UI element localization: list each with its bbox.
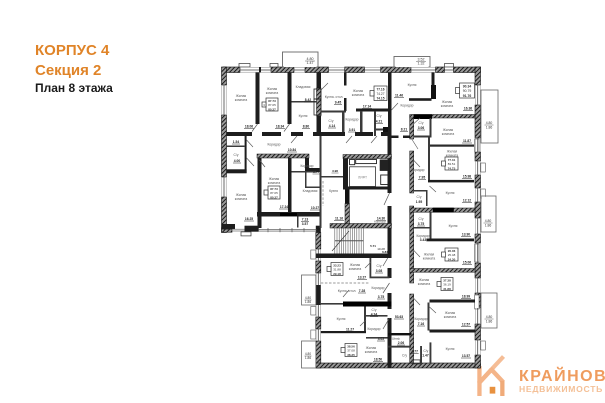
svg-text:13.27: 13.27 bbox=[358, 276, 366, 280]
svg-text:комната: комната bbox=[365, 350, 378, 354]
svg-text:13.90: 13.90 bbox=[462, 233, 470, 237]
svg-text:11.87: 11.87 bbox=[463, 139, 471, 143]
svg-text:С/у: С/у bbox=[234, 153, 239, 157]
svg-text:Кухня: Кухня bbox=[329, 189, 338, 193]
svg-text:4.00: 4.00 bbox=[234, 159, 241, 163]
svg-text:ЛИФТ: ЛИФТ bbox=[358, 176, 367, 180]
svg-text:Коридор: Коридор bbox=[371, 286, 384, 290]
svg-text:Кухня- стол.: Кухня- стол. bbox=[325, 95, 344, 99]
svg-text:комната: комната bbox=[444, 315, 457, 319]
svg-text:3.98: 3.98 bbox=[332, 169, 338, 173]
svg-text:комната: комната bbox=[442, 132, 455, 136]
svg-text:Кухня: Кухня bbox=[446, 347, 455, 351]
svg-text:90.34: 90.34 bbox=[463, 85, 472, 89]
svg-text:С/у: С/у bbox=[417, 195, 422, 199]
svg-text:Коридор: Коридор bbox=[414, 317, 427, 321]
svg-text:8.42: 8.42 bbox=[305, 98, 312, 102]
svg-text:4.02: 4.02 bbox=[378, 337, 385, 341]
svg-text:Коридор: Коридор bbox=[300, 164, 313, 168]
svg-text:31.88: 31.88 bbox=[443, 287, 451, 291]
svg-text:С/у: С/у bbox=[419, 121, 424, 125]
svg-text:3.44: 3.44 bbox=[313, 170, 319, 174]
svg-text:С/у: С/у bbox=[423, 349, 428, 353]
svg-text:4.80: 4.80 bbox=[485, 219, 492, 223]
svg-text:8.21: 8.21 bbox=[401, 128, 408, 132]
svg-text:77.16: 77.16 bbox=[377, 88, 385, 92]
svg-text:74.15: 74.15 bbox=[377, 97, 385, 101]
svg-text:4.21: 4.21 bbox=[376, 120, 383, 124]
svg-text:38.35: 38.35 bbox=[347, 353, 355, 357]
svg-text:13.57: 13.57 bbox=[462, 354, 470, 358]
svg-text:80.37: 80.37 bbox=[268, 107, 276, 111]
svg-text:90.79: 90.79 bbox=[463, 89, 472, 93]
svg-text:11.46: 11.46 bbox=[395, 94, 403, 98]
svg-text:18.99: 18.99 bbox=[462, 295, 470, 299]
svg-text:комната: комната bbox=[235, 98, 248, 102]
svg-text:Кладовая: Кладовая bbox=[303, 189, 318, 193]
svg-text:12.12: 12.12 bbox=[463, 199, 471, 203]
svg-text:91.76: 91.76 bbox=[463, 94, 472, 98]
svg-text:8.80: 8.80 bbox=[303, 125, 310, 129]
svg-text:4.80: 4.80 bbox=[486, 315, 493, 319]
svg-text:11.27: 11.27 bbox=[346, 328, 354, 332]
svg-text:Коридор: Коридор bbox=[267, 143, 280, 147]
svg-text:Коридор: Коридор bbox=[411, 168, 424, 172]
svg-text:1.86: 1.86 bbox=[486, 320, 493, 324]
svg-text:15.06: 15.06 bbox=[463, 261, 471, 265]
svg-text:5.71: 5.71 bbox=[370, 244, 376, 248]
svg-text:53.63: 53.63 bbox=[395, 315, 403, 319]
svg-text:18.50: 18.50 bbox=[374, 358, 382, 362]
svg-text:18.06: 18.06 bbox=[245, 125, 253, 129]
svg-text:74.27: 74.27 bbox=[377, 92, 385, 96]
svg-text:17.14: 17.14 bbox=[363, 105, 371, 109]
svg-text:3.08: 3.08 bbox=[376, 269, 383, 273]
svg-text:2.06: 2.06 bbox=[398, 341, 405, 345]
svg-text:6.84: 6.84 bbox=[382, 250, 388, 254]
svg-text:29.18: 29.18 bbox=[333, 272, 341, 276]
svg-text:7.95: 7.95 bbox=[419, 176, 426, 180]
svg-text:3.75: 3.75 bbox=[378, 295, 385, 299]
svg-text:комната: комната bbox=[418, 282, 431, 286]
svg-text:комната: комната bbox=[235, 197, 248, 201]
svg-text:4.34: 4.34 bbox=[371, 313, 378, 317]
svg-text:3.43: 3.43 bbox=[420, 238, 427, 242]
svg-text:комната: комната bbox=[349, 267, 362, 271]
svg-text:10.84: 10.84 bbox=[288, 148, 296, 152]
svg-text:7.28: 7.28 bbox=[359, 289, 366, 293]
svg-text:1.86: 1.86 bbox=[485, 224, 492, 228]
svg-text:комната: комната bbox=[423, 257, 436, 261]
svg-text:Коридор: Коридор bbox=[345, 118, 358, 122]
svg-text:С/у: С/у bbox=[377, 264, 382, 268]
svg-text:Кухня: Кухня bbox=[299, 114, 308, 118]
svg-text:Коридор: Коридор bbox=[374, 220, 386, 224]
svg-text:3.91: 3.91 bbox=[349, 128, 356, 132]
svg-text:16.36: 16.36 bbox=[464, 107, 472, 111]
svg-text:3.06: 3.06 bbox=[418, 126, 425, 130]
svg-text:12.57: 12.57 bbox=[462, 323, 470, 327]
svg-text:9.45: 9.45 bbox=[335, 101, 342, 105]
svg-text:комната: комната bbox=[266, 91, 279, 95]
svg-text:3.75: 3.75 bbox=[418, 222, 425, 226]
svg-text:С/у: С/у bbox=[372, 308, 377, 312]
svg-text:15.98: 15.98 bbox=[463, 175, 471, 179]
svg-text:С/у: С/у bbox=[329, 119, 334, 123]
svg-text:Кухня: Кухня bbox=[337, 317, 346, 321]
svg-text:17.24: 17.24 bbox=[280, 205, 288, 209]
svg-text:4.77: 4.77 bbox=[411, 350, 418, 354]
svg-text:7.16: 7.16 bbox=[418, 322, 425, 326]
svg-text:1.86: 1.86 bbox=[305, 300, 311, 304]
svg-text:1.54: 1.54 bbox=[233, 140, 240, 144]
svg-text:1.47: 1.47 bbox=[307, 61, 314, 65]
svg-text:11.16: 11.16 bbox=[335, 217, 343, 221]
svg-text:Кладовая: Кладовая bbox=[296, 85, 311, 89]
svg-text:80.37: 80.37 bbox=[270, 195, 278, 199]
svg-text:комната: комната bbox=[268, 181, 281, 185]
svg-text:18.34: 18.34 bbox=[276, 125, 284, 129]
svg-text:3.57: 3.57 bbox=[302, 222, 309, 226]
svg-text:1.86: 1.86 bbox=[486, 126, 493, 130]
svg-text:1.86: 1.86 bbox=[305, 356, 311, 360]
svg-text:С/у: С/у bbox=[419, 217, 424, 221]
svg-text:10.27: 10.27 bbox=[311, 206, 319, 210]
svg-text:24.30: 24.30 bbox=[448, 257, 456, 261]
svg-text:Кухня: Кухня bbox=[408, 83, 417, 87]
svg-text:Кухня: Кухня bbox=[446, 191, 455, 195]
svg-text:Кухня: Кухня bbox=[449, 224, 458, 228]
svg-text:Коридор: Коридор bbox=[400, 104, 413, 108]
svg-text:комната: комната bbox=[441, 104, 454, 108]
svg-text:4.80: 4.80 bbox=[486, 121, 493, 125]
svg-text:4.14: 4.14 bbox=[329, 124, 336, 128]
svg-text:16.25: 16.25 bbox=[245, 217, 253, 221]
svg-text:74.75: 74.75 bbox=[448, 166, 456, 170]
svg-text:комната: комната bbox=[352, 93, 365, 97]
svg-text:Коридор: Коридор bbox=[367, 327, 380, 331]
svg-text:С/у: С/у bbox=[377, 114, 382, 118]
svg-text:1.95: 1.95 bbox=[416, 200, 423, 204]
svg-text:С/у: С/у bbox=[402, 354, 407, 358]
svg-text:1.32: 1.32 bbox=[418, 62, 425, 66]
svg-text:1.47: 1.47 bbox=[422, 354, 429, 358]
